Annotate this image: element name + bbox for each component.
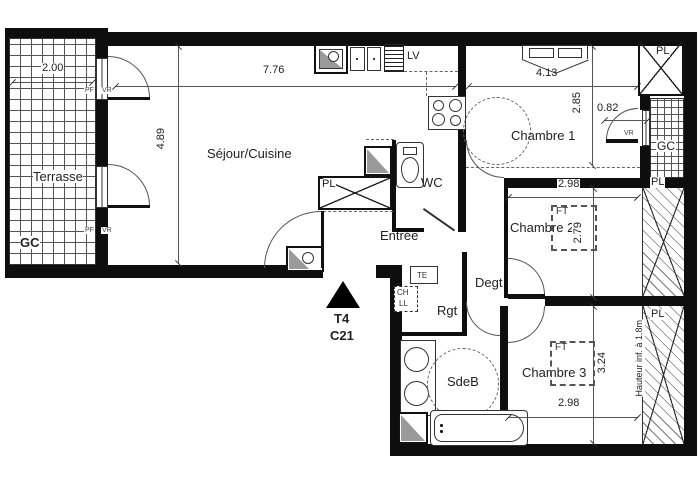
electrical-panel-label-te: TE	[416, 272, 428, 280]
door-leaf	[108, 205, 150, 208]
unit-number-label: C21	[330, 329, 354, 342]
door-swing-arc	[466, 302, 500, 336]
height-note: Hauteur inf. à 1.8m	[634, 320, 645, 397]
kitchen-sink-drain	[328, 51, 339, 62]
wc-door	[423, 208, 455, 231]
door-swing-arc	[108, 56, 150, 98]
appliance-label-lv: LV	[406, 51, 421, 62]
closet-label-pl: PL	[650, 309, 665, 320]
dim-terrasse-width: 2.00	[41, 63, 64, 74]
dim-line	[468, 86, 638, 87]
window-label-vr: VR	[623, 130, 635, 137]
wall	[96, 100, 108, 166]
closet-label-pl: PL	[650, 177, 665, 188]
dim-line	[178, 46, 179, 264]
dim-line	[604, 120, 648, 121]
closet-label-pl: PL	[321, 179, 336, 190]
wall	[458, 178, 466, 188]
entrance-door-arc	[264, 211, 321, 268]
cabinet-knob	[356, 58, 358, 60]
balcony-railing	[650, 98, 684, 178]
closet-low-height-zone	[642, 306, 684, 444]
wall	[96, 208, 108, 278]
wc-outline	[366, 139, 394, 140]
door-swing-arc	[508, 258, 545, 295]
bed-fold-line	[555, 60, 589, 74]
dim-chambre3-depth: 3.24	[596, 352, 609, 373]
entrance-marker	[326, 281, 360, 308]
counter-outline	[426, 72, 427, 96]
dim-chambre2-width: 2.98	[557, 179, 580, 190]
bed-pillow	[558, 48, 582, 58]
railing-label-gc: GC	[20, 236, 40, 249]
balcony-window	[642, 110, 650, 146]
entrance-door-leaf	[321, 211, 324, 268]
wall	[684, 32, 697, 456]
wall	[96, 38, 108, 58]
window-label-vr: VR	[101, 227, 113, 234]
french-window	[96, 166, 108, 208]
door-swing-arc	[108, 164, 150, 206]
washer-label-ll: LL	[398, 300, 409, 308]
dim-line	[508, 197, 638, 198]
washbasin	[404, 381, 429, 406]
window-label-pf: PF	[84, 87, 95, 94]
burner	[433, 100, 444, 111]
closet-label-pl: PL	[655, 46, 670, 57]
dishwasher	[384, 44, 404, 72]
window-label-pf: PF	[84, 227, 95, 234]
wall	[462, 252, 467, 336]
dim-sejour-width: 7.76	[262, 65, 285, 76]
burner	[432, 113, 445, 126]
dim-line	[508, 417, 638, 418]
burner	[450, 115, 461, 126]
dim-balcon-width: 0.82	[596, 103, 619, 114]
washbasin	[404, 347, 429, 372]
unit-type-label: T4	[334, 312, 349, 325]
wall	[545, 296, 684, 306]
room-label-terrasse: Terrasse	[33, 170, 83, 183]
closet-low-height-zone	[642, 188, 684, 296]
door-leaf	[108, 97, 150, 100]
roof-window-label-ft: FT	[554, 343, 568, 353]
bed-pillow	[529, 48, 554, 58]
dim-sejour-depth: 4.89	[155, 128, 168, 149]
wall	[5, 28, 108, 38]
roof-window-label-ft: FT	[555, 207, 569, 217]
wall	[376, 265, 402, 278]
room-label-wc: WC	[421, 176, 443, 189]
dim-chambre3-width: 2.98	[557, 398, 580, 409]
dim-line	[592, 46, 593, 166]
floor-plan: Terrasse GC 2.00 PF VR PF VR Séjour/Cuis…	[0, 0, 700, 496]
room-label-sejour: Séjour/Cuisine	[207, 147, 292, 160]
door-leaf	[508, 294, 545, 299]
door-leaf	[606, 139, 638, 143]
door-swing-arc	[508, 306, 545, 343]
dim-chambre1-depth: 2.85	[571, 92, 584, 113]
counter-outline	[404, 71, 458, 72]
dim-line	[12, 82, 93, 83]
room-label-degt: Degt	[475, 276, 502, 289]
wall	[640, 146, 650, 178]
room-label-entree: Entrée	[380, 229, 418, 242]
bathtub-tap	[440, 424, 443, 427]
bathtub-basin	[434, 414, 524, 442]
toilet-tank	[403, 147, 417, 155]
wall	[640, 96, 650, 110]
dim-line	[115, 86, 456, 87]
room-label-rgt: Rgt	[437, 304, 457, 317]
burner	[449, 99, 462, 112]
wall	[402, 332, 464, 336]
cabinet-knob	[373, 58, 375, 60]
railing-label-gc: GC	[656, 140, 676, 152]
boiler-label-ch: CH	[396, 289, 410, 297]
dim-line	[593, 306, 594, 444]
door-swing-arc	[466, 140, 504, 178]
entree-outline	[323, 211, 393, 212]
bathtub-tap	[440, 430, 443, 433]
